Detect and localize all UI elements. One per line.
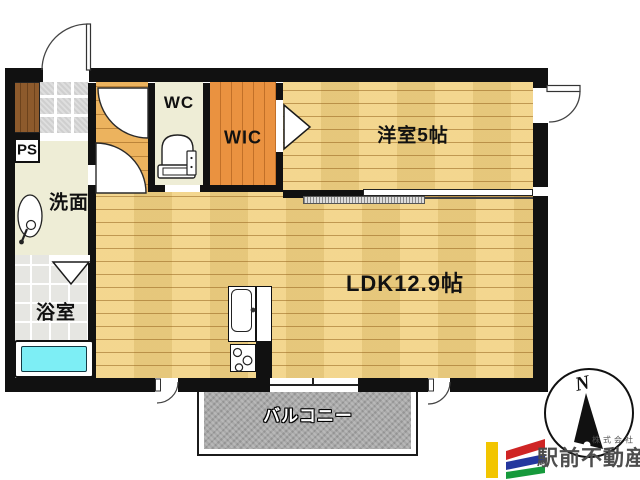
washroom-label: 洗面 [49,188,89,215]
sliding-door-panel [363,189,533,196]
wall-left-column [88,83,96,378]
company-name-label: 駅前不動産 [537,442,640,472]
kitchen-counter-side [256,286,272,342]
sliding-door-rail [425,197,533,199]
kitchen-wall-stub [256,342,272,378]
shoe-cabinet [13,82,40,133]
western-room-door-icon [547,86,580,123]
ldk-label: LDK12.9帖 [346,266,464,298]
wall-wc-right [203,83,210,192]
ldk-floor [96,192,533,378]
sliding-door-track-panel [303,196,425,204]
entrance-opening [43,68,89,82]
bathtub [21,346,87,372]
wall-wc-left [148,83,155,192]
kitchen-sink [231,289,252,332]
genkan-entrance-tiles [40,80,88,133]
logo-bar-yellow [486,442,498,478]
washroom-door-opening [88,165,96,185]
hallway-floor [96,82,148,198]
balcony-window-meeting-stile [312,378,314,386]
entrance-door-icon [42,24,91,70]
compass-north-label: N [573,371,593,397]
floorplan-page: WC WIC 洋室5帖 洗面 浴室 PS LDK12.9帖 バルコニー N 株式… [0,0,640,480]
wic-opening [276,100,283,152]
western-room-door-opening [533,88,548,123]
bathroom-label: 浴室 [36,298,76,325]
wc-door-opening [165,185,200,192]
wc-label: WC [164,93,194,113]
western-room-label: 洋室5帖 [377,121,449,148]
stove [230,344,256,372]
wic-label: WIC [224,128,262,149]
bottom-door-opening-right [428,378,450,392]
pipe-space-label: PS [17,142,37,159]
bottom-door-opening-left [155,378,178,392]
balcony-label: バルコニー [263,402,353,427]
slider-track-opening [533,187,548,196]
balcony-window-rail [270,384,358,386]
